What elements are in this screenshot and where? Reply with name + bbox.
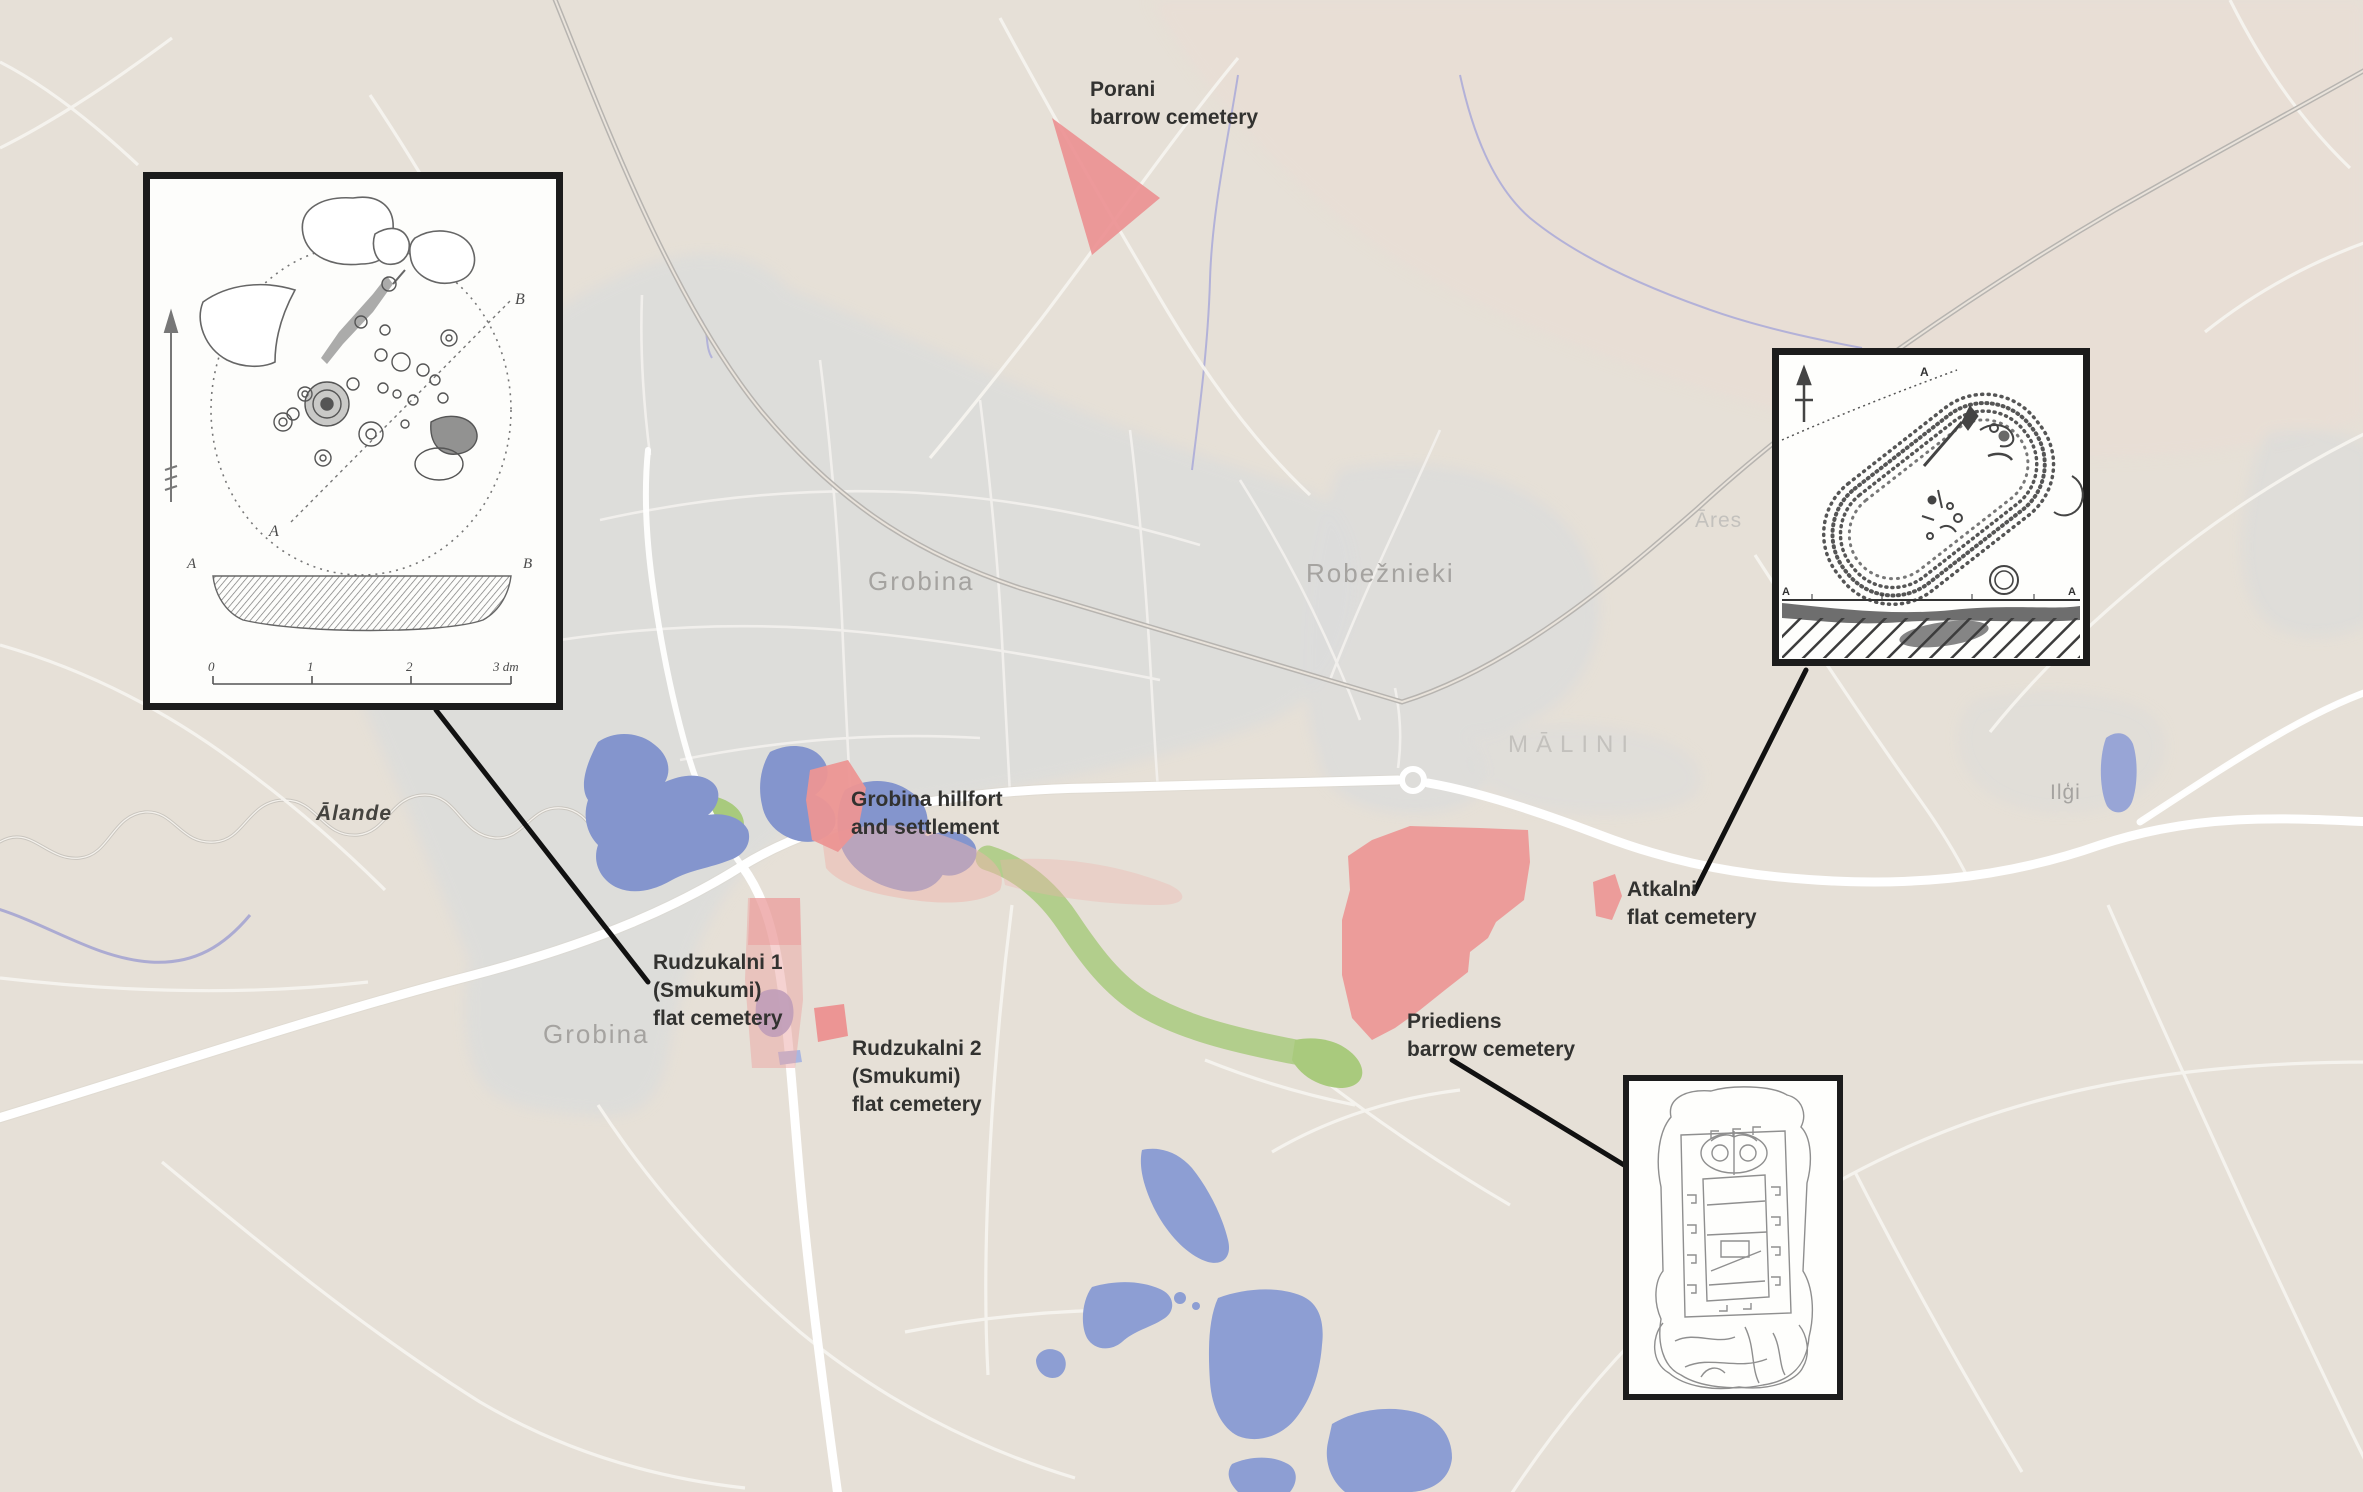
grave-top-label: A — [1920, 365, 1929, 379]
svg-text:flat cemetery: flat cemetery — [1627, 906, 1757, 929]
svg-text:Rudzukalni 1: Rudzukalni 1 — [653, 951, 783, 974]
barrow-cross-section — [213, 576, 511, 631]
inset-barrow-plan: B A A B — [147, 176, 560, 707]
scale-2: 2 — [406, 659, 413, 674]
rudzukalni2-site — [814, 1004, 848, 1042]
section-letter-a: A — [186, 556, 197, 572]
svg-text:flat cemetery: flat cemetery — [653, 1007, 783, 1030]
grey-patch-right — [2242, 429, 2363, 636]
svg-text:Porani: Porani — [1090, 78, 1155, 101]
label-ilgi: Ilģi — [2050, 781, 2081, 804]
section-letter-right: A — [2068, 586, 2076, 598]
pond-ilgi — [2101, 733, 2137, 812]
scale-1: 1 — [307, 659, 314, 674]
svg-text:Rudzukalni 2: Rudzukalni 2 — [852, 1037, 982, 1060]
label-grobina-sw: Grobina — [543, 1019, 650, 1049]
section-letter-left: A — [1782, 586, 1790, 598]
inset-grave-plan: A A A — [1776, 352, 2087, 663]
plan-letter-b: B — [515, 291, 525, 308]
scale-0: 0 — [208, 659, 215, 674]
svg-text:Priediens: Priediens — [1407, 1010, 1502, 1033]
subsoil-hatch — [1782, 618, 2080, 658]
svg-text:Grobina hillfort: Grobina hillfort — [851, 788, 1003, 811]
scale-3dm: 3 dm — [492, 659, 519, 674]
plan-letter-a: A — [268, 523, 279, 540]
label-grobina-town: Grobina — [868, 566, 975, 596]
svg-text:(Smukumi): (Smukumi) — [852, 1065, 961, 1088]
grobina-archaeology-map: Grobina Robežnieki MĀLINI Āres Ilģi Grob… — [0, 0, 2363, 1492]
svg-text:barrow cemetery: barrow cemetery — [1407, 1038, 1575, 1061]
svg-text:flat cemetery: flat cemetery — [852, 1093, 982, 1116]
label-malini: MĀLINI — [1508, 731, 1636, 758]
svg-text:barrow cemetery: barrow cemetery — [1090, 106, 1258, 129]
section-letter-b: B — [523, 556, 532, 572]
svg-text:(Smukumi): (Smukumi) — [653, 979, 762, 1002]
label-robeznieki: Robežnieki — [1306, 558, 1455, 588]
svg-text:and settlement: and settlement — [851, 816, 999, 839]
inset-picture-stone — [1626, 1078, 1840, 1397]
svg-text:Atkalni: Atkalni — [1627, 878, 1697, 901]
label-ares: Āres — [1695, 509, 1742, 532]
label-alande: Ālande — [315, 802, 392, 825]
lake-5 — [1327, 1409, 1452, 1492]
